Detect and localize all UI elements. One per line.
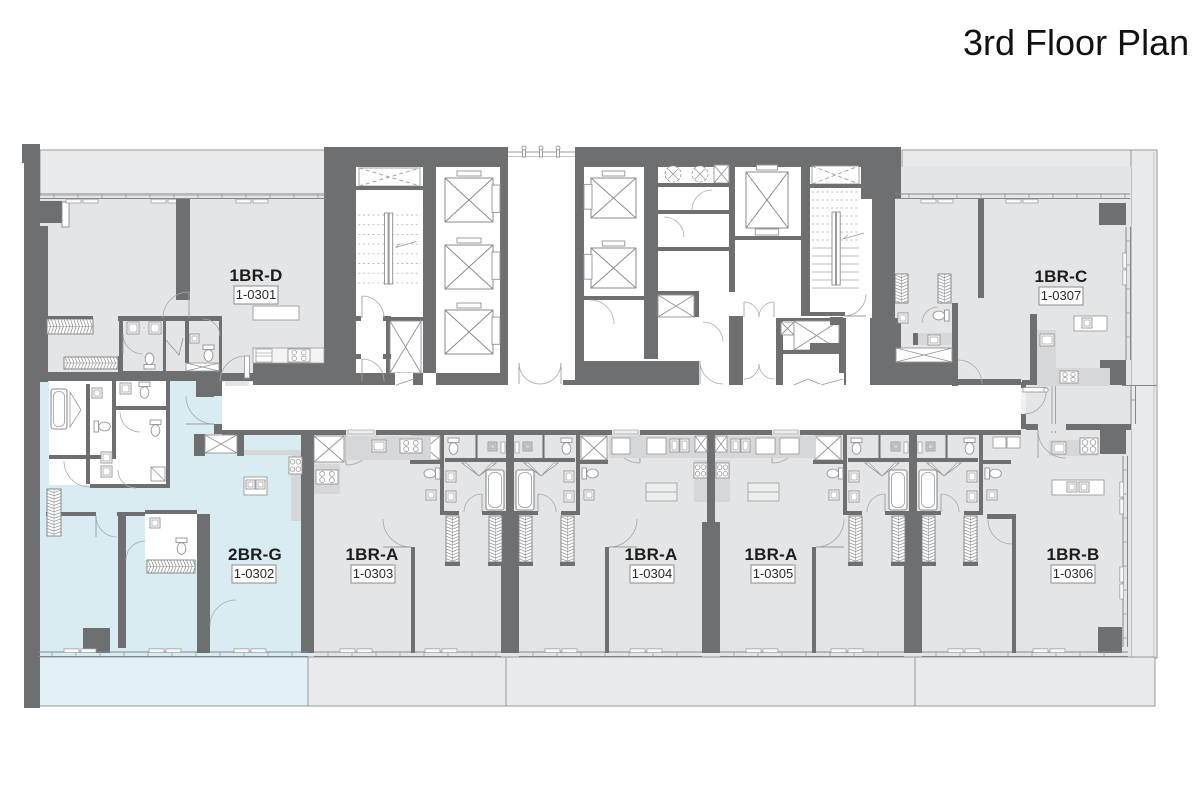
svg-text:1-0303: 1-0303 bbox=[353, 566, 393, 581]
svg-text:1BR-C: 1BR-C bbox=[1035, 267, 1088, 286]
svg-text:1-0307: 1-0307 bbox=[1041, 288, 1081, 303]
svg-text:3rd Floor Plan: 3rd Floor Plan bbox=[963, 22, 1189, 63]
svg-text:1BR-A: 1BR-A bbox=[346, 545, 399, 564]
svg-text:1-0301: 1-0301 bbox=[236, 287, 276, 302]
svg-text:1-0306: 1-0306 bbox=[1053, 566, 1093, 581]
svg-text:1-0304: 1-0304 bbox=[632, 566, 672, 581]
svg-text:1BR-D: 1BR-D bbox=[230, 266, 283, 285]
svg-text:1-0302: 1-0302 bbox=[234, 566, 274, 581]
svg-text:2BR-G: 2BR-G bbox=[228, 545, 282, 564]
svg-text:1BR-B: 1BR-B bbox=[1047, 545, 1100, 564]
svg-text:1-0305: 1-0305 bbox=[753, 566, 793, 581]
svg-text:1BR-A: 1BR-A bbox=[625, 545, 678, 564]
svg-text:1BR-A: 1BR-A bbox=[745, 545, 798, 564]
